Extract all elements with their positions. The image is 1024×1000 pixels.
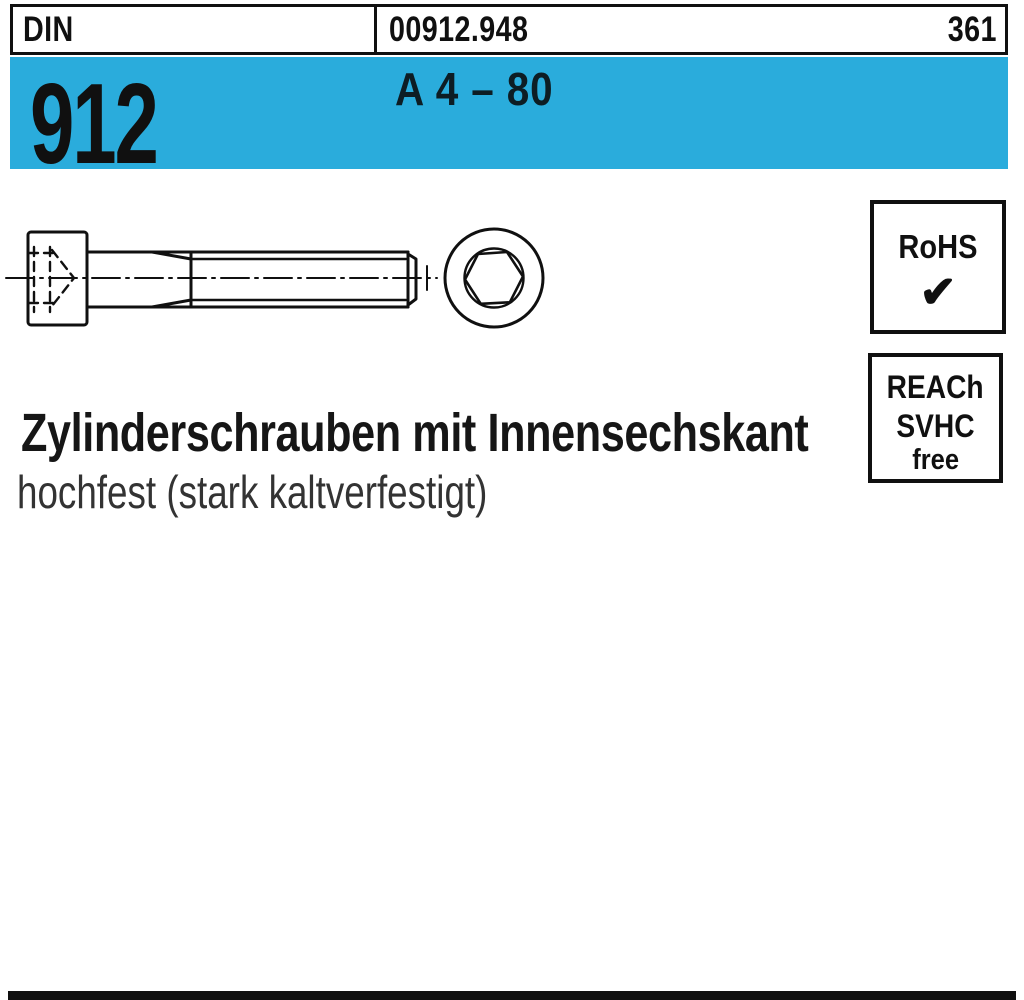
screw-shank	[87, 252, 416, 307]
standard-banner: 912 A 4 – 80	[10, 57, 1008, 169]
catalog-header: DIN 00912.948 361	[10, 4, 1008, 55]
catalog-card-page: DIN 00912.948 361 912 A 4 – 80	[0, 0, 1024, 1000]
din-label: DIN	[23, 12, 74, 47]
reach-badge: REACh SVHC free	[868, 353, 1003, 483]
article-number: 00912.948	[389, 12, 528, 47]
standard-number: 912	[30, 68, 157, 182]
reach-label-line1: REACh	[887, 371, 984, 403]
article-cell: 00912.948 361	[377, 7, 1005, 52]
rohs-label: RoHS	[898, 230, 977, 263]
page-number: 361	[948, 12, 997, 47]
rohs-badge: RoHS ✔	[870, 200, 1006, 334]
reach-label-line3: free	[912, 446, 959, 475]
din-cell: DIN	[13, 7, 377, 52]
screw-technical-drawing	[0, 195, 560, 361]
product-title: Zylinderschrauben mit Innensechskant	[21, 406, 808, 460]
product-subtitle: hochfest (stark kaltverfestigt)	[17, 469, 487, 515]
rohs-check-icon: ✔	[920, 271, 957, 315]
hex-socket-outline	[465, 252, 523, 304]
footer-bar	[8, 991, 1016, 1000]
head-outline-circle	[445, 229, 543, 327]
screw-side-view	[6, 232, 437, 325]
hex-socket-hidden-lines	[29, 247, 74, 312]
reach-label-line2: SVHC	[896, 410, 974, 442]
screw-front-view	[427, 229, 543, 327]
material-grade-label: A 4 – 80	[395, 66, 554, 112]
socket-circle	[465, 249, 524, 308]
